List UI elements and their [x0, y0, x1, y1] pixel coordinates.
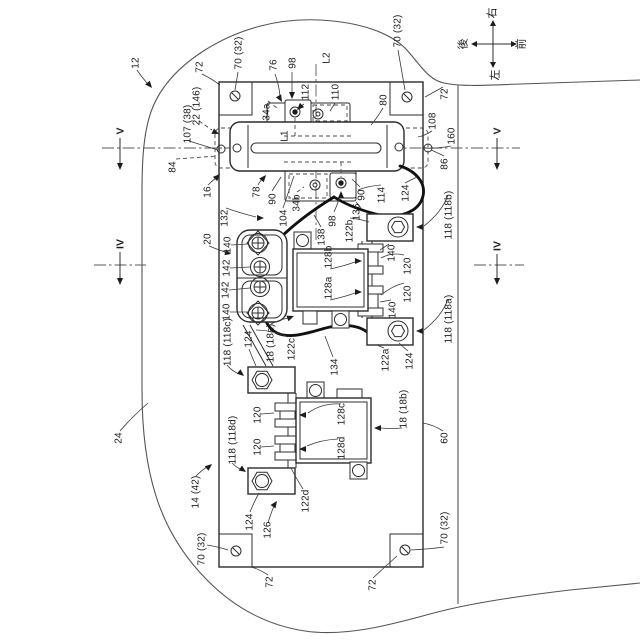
bolt-slot [233, 548, 239, 554]
label-112: 112 [301, 83, 312, 100]
bracket-118c [248, 367, 295, 393]
label-128c: 128c [337, 403, 348, 426]
corner-pad-top-right [390, 82, 423, 115]
label-140-r1: 140 [387, 244, 398, 262]
label-136: 136 [352, 203, 363, 221]
label-70-32-top-right: 70 (32) [393, 14, 404, 47]
bracket-118a [367, 318, 413, 345]
label-122d: 122d [301, 489, 312, 512]
label-110: 110 [331, 83, 342, 100]
corner-pad-bottom-left [219, 534, 252, 567]
pad-square [390, 82, 423, 115]
label-20: 20 [203, 233, 214, 245]
bolt-90 [310, 180, 320, 190]
label-140-r2: 140 [388, 301, 399, 319]
bracket-body [367, 318, 413, 345]
label-134: 134 [330, 358, 341, 376]
label-86: 86 [440, 158, 451, 170]
label-142-l1: 142 [222, 259, 233, 277]
label-14-42: 14 (42) [191, 475, 202, 508]
label-axis-L1: L1 [280, 130, 291, 142]
label-138: 138 [317, 228, 328, 246]
label-132: 132 [220, 209, 231, 227]
label-128a: 128a [324, 276, 335, 299]
label-24: 24 [114, 432, 125, 444]
label-120-r1: 120 [403, 257, 414, 275]
bolt-110 [313, 109, 323, 119]
label-122b: 122b [345, 219, 356, 242]
label-72-top-left: 72 [195, 61, 206, 73]
label-128d: 128d [337, 436, 348, 459]
label-70-32-top-left: 70 (32) [234, 36, 245, 69]
section-letter-V: V [492, 127, 504, 134]
label-72-bottom-left: 72 [265, 576, 276, 588]
patent-figure-page: V V IV IV [0, 0, 640, 640]
label-34a: 34a [262, 103, 273, 121]
mount-hole-left-outer [217, 145, 225, 153]
bracket-118b [367, 214, 413, 241]
label-120-b1: 120 [253, 406, 264, 424]
label-72-top-right: 72 [440, 88, 451, 100]
bolt-slot [404, 94, 410, 100]
label-78: 78 [252, 186, 263, 198]
compass-label-up: 右 [485, 8, 499, 19]
label-18-18b: 18 (18b) [399, 390, 410, 429]
upper-bracket-76 [285, 100, 311, 123]
label-98-top: 98 [288, 57, 299, 69]
compass-arrow-down-icon [490, 62, 496, 68]
bracket-118d [248, 468, 295, 494]
patent-drawing: V V IV IV [0, 0, 640, 640]
label-124-a: 124 [405, 352, 416, 370]
label-98-mid: 98 [328, 215, 339, 227]
label-114: 114 [377, 186, 388, 203]
compass-arrow-left-icon [471, 41, 477, 47]
label-124-c: 124 [244, 330, 255, 348]
label-122a: 122a [381, 348, 392, 371]
bolt-slot [402, 547, 408, 553]
relay-box-18b [296, 382, 371, 479]
box-outline [296, 398, 371, 463]
label-90-left: 90 [268, 193, 279, 205]
label-70-32-bottom-right: 70 (32) [440, 511, 451, 544]
label-118-118b: 118 (118b) [444, 191, 455, 240]
label-118-118a: 118 (118a) [444, 295, 455, 344]
section-marker-IV-right: IV [492, 241, 504, 285]
section-letter-IV: IV [492, 241, 504, 251]
compass-label-right: 前 [514, 39, 528, 50]
label-118-118c: 118 (118c) [223, 318, 234, 366]
label-104: 104 [279, 209, 290, 227]
side-tab [337, 389, 362, 398]
label-80: 80 [379, 94, 390, 106]
label-124-d: 124 [245, 513, 256, 531]
label-126: 126 [263, 521, 274, 539]
bolt-slot [232, 93, 238, 99]
label-12: 12 [131, 57, 142, 69]
label-142-l2: 142 [221, 281, 232, 299]
label-84: 84 [168, 161, 179, 173]
section-letter-IV: IV [115, 239, 127, 249]
label-72-bottom-right: 72 [368, 579, 379, 591]
section-marker-V-left: V [115, 127, 127, 170]
label-140-l1: 140 [223, 236, 234, 254]
label-108: 108 [428, 112, 439, 130]
label-34b: 34b [292, 194, 303, 212]
label-76: 76 [269, 59, 280, 71]
label-16: 16 [203, 186, 214, 198]
label-118-118d: 118 (118d) [228, 416, 239, 465]
bracket-body [367, 214, 413, 241]
label-70-32-bottom-left: 70 (32) [197, 532, 208, 565]
direction-compass: 右 左 後 前 [456, 8, 528, 81]
label-128b: 128b [324, 245, 335, 268]
compass-arrow-up-icon [490, 20, 496, 26]
label-120-b2: 120 [253, 438, 264, 456]
label-18-18a: 18 (18a) [266, 324, 277, 363]
section-letter-V: V [115, 127, 127, 134]
label-90-right: 90 [357, 189, 368, 201]
label-124-cable: 124 [401, 184, 412, 202]
section-marker-V-right: V [492, 127, 504, 170]
label-axis-L2: L2 [322, 52, 333, 64]
label-60: 60 [440, 432, 451, 444]
compass-label-down: 左 [489, 70, 502, 81]
label-160: 160 [447, 127, 458, 145]
label-122c: 122c [287, 338, 298, 361]
corner-pad-bottom-right [390, 534, 423, 567]
lower-bracket-114 [330, 173, 356, 198]
label-107-38: 107 (38) [183, 105, 194, 144]
label-120-r2: 120 [403, 285, 414, 303]
section-marker-IV-left: IV [115, 239, 127, 285]
actuator-body-80 [230, 122, 404, 171]
pad-square [390, 534, 423, 567]
compass-label-left: 後 [456, 39, 470, 50]
foot-plain [303, 311, 317, 324]
